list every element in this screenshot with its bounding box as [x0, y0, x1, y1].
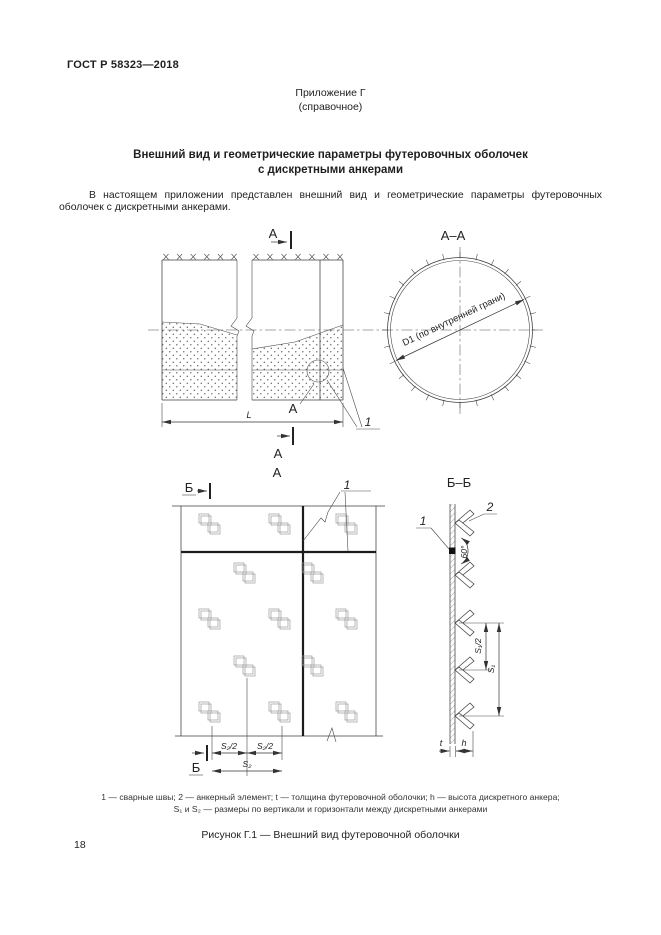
section-b-top-label: Б [185, 480, 194, 495]
anchor-callout-2: 2 [486, 500, 494, 514]
view-a: А Б 1 S₂/2 S₂/2 S₂ [172, 465, 385, 776]
anchor-tick-marks [164, 254, 343, 260]
page-number: 18 [74, 839, 86, 851]
section-bb-view: Б–Б 1 2 60° S₁/2 S₁ t h [416, 475, 504, 757]
document-page: ГОСТ Р 58323—2018 Приложение Г (справочн… [0, 0, 661, 935]
dim-L-label: L [246, 410, 251, 420]
weld-callout-1-view-a: 1 [344, 478, 351, 492]
dim-h-label: h [461, 738, 466, 748]
dim-s2-half-left: S₂/2 [221, 741, 237, 751]
dim-s2-half-right: S₂/2 [257, 741, 273, 751]
dim-s2-label: S₂ [243, 759, 253, 769]
angle-60-label: 60° [459, 545, 469, 558]
section-bb-title: Б–Б [447, 475, 471, 490]
dim-s1-half-label: S₁/2 [473, 638, 483, 654]
discrete-anchor-glyphs [199, 514, 357, 722]
figure-legend: 1 — сварные швы; 2 — анкерный элемент; t… [0, 792, 661, 815]
weld-dot [449, 548, 456, 555]
dim-s1-label: S₁ [486, 665, 496, 674]
view-a-title: А [273, 465, 282, 480]
section-a-bottom-label: А [274, 446, 283, 461]
legend-line1: 1 — сварные швы; 2 — анкерный элемент; t… [0, 792, 661, 804]
section-aa-title: А–А [441, 228, 466, 243]
section-a-top-label: А [269, 226, 278, 241]
view-a-callout-label: А [289, 401, 298, 416]
section-aa-view: А–А D1 (по внутренней грани) [382, 228, 538, 414]
dim-D1-label: D1 (по внутренней грани) [401, 291, 507, 349]
weld-callout-1: 1 [365, 415, 372, 429]
figure-caption: Рисунок Г.1 — Внешний вид футеровочной о… [0, 829, 661, 841]
weld-callout-1-bb: 1 [420, 514, 427, 528]
legend-line2: S₁ и S₂ — размеры по вертикали и горизон… [0, 804, 661, 816]
dim-t-label: t [440, 738, 443, 748]
anchor-prongs [455, 510, 474, 729]
section-b-bottom-label: Б [192, 760, 201, 775]
